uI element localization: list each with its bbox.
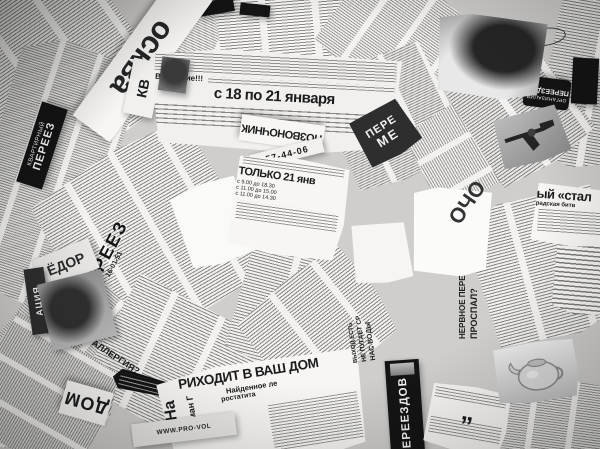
banner-photo-thumb	[390, 362, 415, 376]
dom-headline: ДОМ	[62, 387, 111, 420]
black-ad-tag	[571, 57, 599, 104]
figure-photo	[432, 11, 548, 104]
stal-headline-clipping: ый «стал радская битв	[530, 182, 600, 249]
prospal-scrap: НЕРВНОЕ ПЕРЕ ПРОСПАЛ?	[452, 243, 484, 339]
newspaper-collage-photo: осква КВ КВАРТИРНЫЙ ПЕРЕЕЗ Внимание!!! с…	[0, 0, 600, 449]
kv-text: КВ	[133, 77, 153, 99]
newsprint-lines	[268, 391, 364, 449]
nervnoe-line: НЕРВНОЕ ПЕРЕ	[458, 243, 467, 339]
www-url: WWW.PRO-VOL	[156, 423, 211, 437]
blank-paper-scrap	[348, 218, 414, 287]
pereezdov-banner-label: ПЕРЕЕЗДОВ	[397, 377, 415, 449]
teapot-icon	[501, 346, 571, 398]
newsprint-lines	[537, 209, 600, 236]
small-dark-photo	[158, 56, 190, 94]
prospal-line: ПРОСПАЛ?	[469, 243, 479, 339]
pereezdov-vertical-banner: ПЕРЕЕЗДОВ	[385, 359, 426, 449]
nas-vody-scrap: ВЫХОД ЕСТЬ НЕ ПУГАЕТ СР НАС ВОДЫ	[332, 295, 391, 367]
revolver-icon	[499, 113, 562, 161]
